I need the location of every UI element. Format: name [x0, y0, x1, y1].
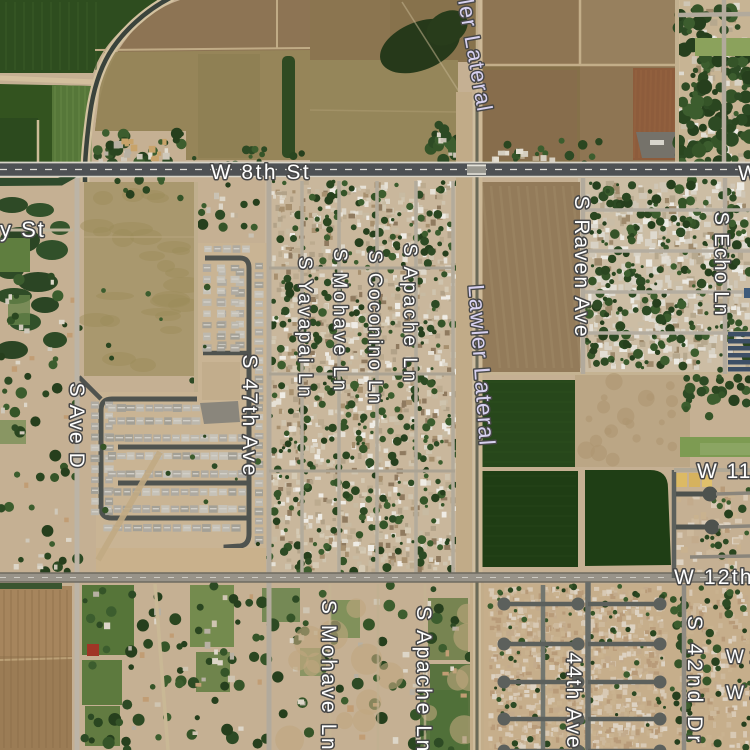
- svg-text:W 1: W 1: [726, 647, 750, 668]
- svg-text:W 1: W 1: [726, 683, 750, 704]
- svg-text:W 8th: W 8th: [738, 162, 750, 185]
- svg-text:W 11th: W 11th: [697, 460, 750, 483]
- svg-text:W 8th St: W 8th St: [211, 161, 312, 184]
- svg-text:S Mohave Ln: S Mohave Ln: [329, 249, 350, 394]
- svg-text:S 42nd Dr: S 42nd Dr: [683, 616, 706, 747]
- svg-text:S Echo Ln: S Echo Ln: [710, 212, 732, 317]
- svg-text:44th Ave: 44th Ave: [562, 652, 585, 749]
- svg-text:S Apache Ln: S Apache Ln: [399, 244, 420, 385]
- svg-text:y St: y St: [0, 217, 46, 242]
- svg-text:S 47th Ave: S 47th Ave: [238, 354, 261, 477]
- svg-text:W 12th St: W 12th St: [674, 566, 750, 589]
- svg-text:S Apache Ln: S Apache Ln: [412, 606, 435, 750]
- svg-text:S Yavapai Ln: S Yavapai Ln: [294, 257, 315, 399]
- svg-text:S Raven Ave: S Raven Ave: [570, 195, 593, 338]
- svg-text:S Ave D: S Ave D: [65, 383, 88, 470]
- svg-text:S Coconino Ln: S Coconino Ln: [364, 250, 385, 406]
- svg-text:S Mohave Ln: S Mohave Ln: [317, 600, 340, 750]
